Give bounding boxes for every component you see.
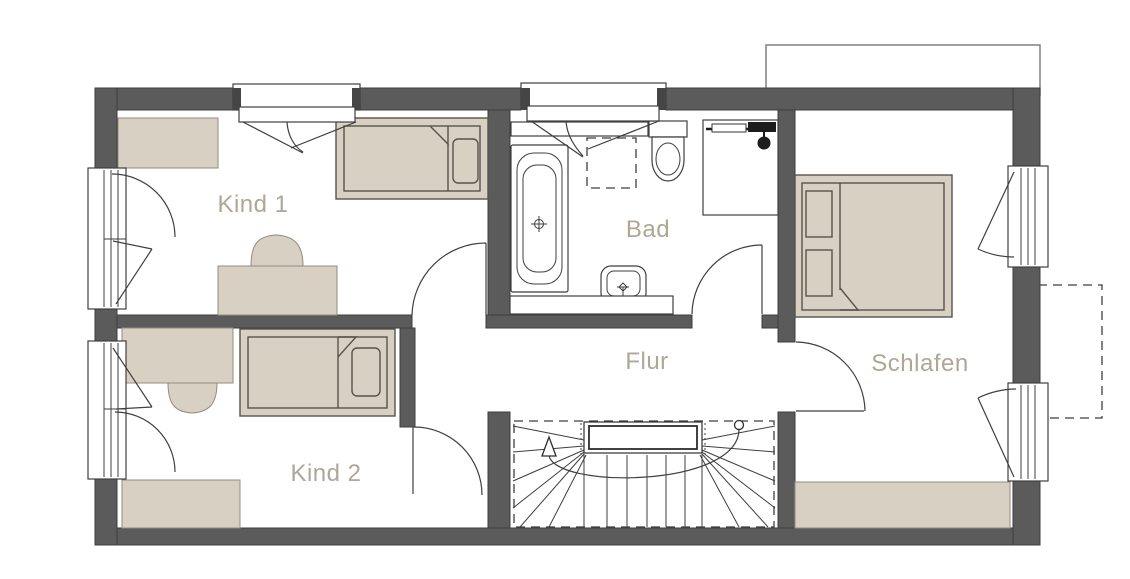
bed-frame [336,118,488,199]
room-kind1: Kind 1 [118,118,488,315]
room-label-schlafen: Schlafen [871,350,968,377]
vanity-counter [703,120,778,215]
shelf-south [510,296,673,314]
door-bad [692,245,762,314]
room-bad: Bad [510,120,778,314]
wall-left [95,307,117,343]
chair [168,383,217,413]
wall-right [1013,479,1040,545]
window-frame [88,341,126,479]
bed-frame [240,329,395,416]
walkline-start-icon [735,421,744,430]
room-label-kind2: Kind 2 [290,460,361,487]
wall-left [95,88,117,170]
floor-plan-page: Kind 1 Kind 2 [0,0,1130,579]
room-schlafen: Schlafen [795,175,1010,528]
single-bed [336,118,488,199]
chair [251,235,303,266]
toilet [649,121,687,181]
towel-rail-heater [748,122,776,132]
wall-top [666,88,1040,110]
wall-kind1-bad [488,110,510,315]
wall-right [1013,265,1040,385]
window-schlafen-right-bottom [978,383,1048,481]
floor-plan: Kind 1 Kind 2 [0,0,1130,579]
sash-swing-arc [287,122,303,152]
desk [122,328,233,383]
wall-kind1-kind2 [117,315,412,328]
door-swing-arc [412,243,486,315]
cistern [649,121,687,137]
window-frame [233,84,360,110]
room-label-flur: Flur [625,348,668,375]
double-bed [795,175,952,317]
window-frame [521,83,666,109]
door-swing-arc [692,245,762,314]
window-sash [527,106,659,121]
wall-kind2-flur [400,328,415,427]
vanity [703,120,778,215]
door-kind1 [412,243,486,315]
stair-landing-rail-inner [589,426,697,449]
room-kind2: Kind 2 [122,328,395,528]
window-schlafen-right-top [978,166,1048,267]
sash-swing [243,122,303,153]
fixture-head [758,137,771,150]
wardrobe [795,482,1010,528]
door-swing-arc [414,427,482,495]
door-schlafen [796,342,865,411]
wardrobe [122,480,240,528]
toilet-bowl [652,137,684,181]
window-kind1-left [88,168,175,309]
wall-left [95,477,117,545]
room-label-bad: Bad [626,216,670,243]
door-kind2 [413,427,482,495]
wall-right [1013,88,1040,168]
towel-rail-bracket [712,124,746,132]
wall-stairwell [488,412,510,528]
stair-direction-arrow [542,437,556,456]
wall-flur-schlafen [778,412,795,528]
wall-top [360,88,521,110]
door-swing-arc [796,342,865,411]
window-sash [239,107,355,122]
single-bed [240,329,395,416]
staircase [513,421,775,528]
wall-bottom [95,528,1040,545]
wall-bad-schlafen [778,110,795,342]
bathtub [511,145,568,292]
wall-bad-flur [486,315,692,328]
room-label-kind1: Kind 1 [217,191,288,218]
wardrobe [118,118,218,168]
desk [218,266,337,315]
shower-dashed [587,138,636,188]
